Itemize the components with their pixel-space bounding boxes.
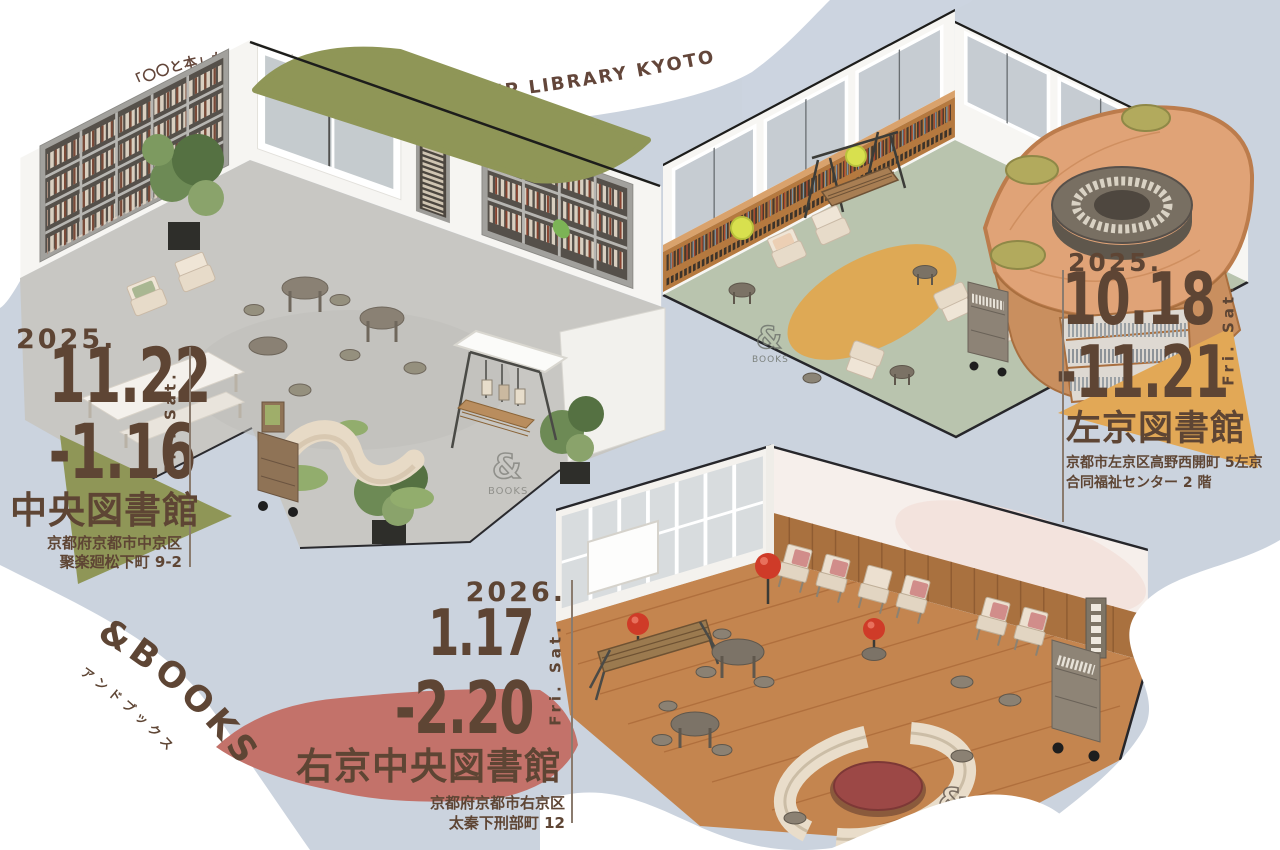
event-address1: 京都府京都市右京区 xyxy=(265,796,565,811)
svg-text:&: & xyxy=(756,321,782,356)
svg-text:BOOKS: BOOKS xyxy=(752,355,789,365)
event-date-start: 11.22 xyxy=(49,338,162,414)
event-venue: 左京図書館 xyxy=(1066,412,1246,447)
poster-canvas: & BOOKS 「〇〇と本」からはじまる、新しい図書館の体験 POP-UP LI… xyxy=(0,0,1280,850)
event-address2: 合同福祉センター 2 階 xyxy=(1066,476,1212,490)
event-date-end: -1.16 xyxy=(49,414,162,490)
lamp-table xyxy=(862,648,886,661)
event-address1: 京都市左京区高野西開町 5左京 xyxy=(1066,456,1263,470)
divider-rule xyxy=(189,347,191,567)
divider-rule xyxy=(571,580,573,823)
event-days: Fri. Sat. xyxy=(1222,250,1237,420)
donut-table xyxy=(1052,167,1192,260)
ball-light-icon xyxy=(731,217,753,239)
event-date-start: 10.18 xyxy=(1062,263,1214,335)
ball-light-icon xyxy=(846,146,866,166)
event-days: Fri. Sat. xyxy=(164,337,179,507)
rug xyxy=(390,487,434,509)
event-days: Fri. Sat. xyxy=(549,590,564,760)
corner-post xyxy=(766,444,774,560)
event-date-end: -2.20 xyxy=(393,672,533,744)
event-address2: 太秦下刑部町 12 xyxy=(265,816,565,831)
divider-rule xyxy=(1062,270,1064,522)
event-venue: 中央図書館 xyxy=(10,492,200,529)
event-address2: 聚楽廻松下町 9-2 xyxy=(0,555,182,570)
event-date-end: -11.21 xyxy=(1056,336,1228,408)
event-venue: 右京中央図書館 xyxy=(262,748,562,785)
svg-text:&: & xyxy=(492,447,522,487)
event-address1: 京都府京都市中京区 xyxy=(0,536,182,551)
event-date-start: 1.17 xyxy=(393,602,533,666)
svg-text:BOOKS: BOOKS xyxy=(488,486,528,497)
